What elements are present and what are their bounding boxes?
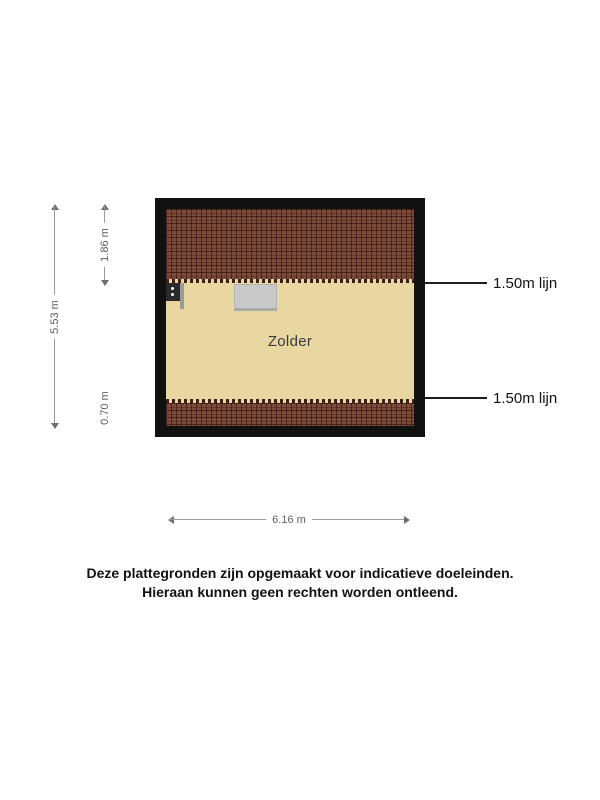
meter-dot-icon	[171, 287, 174, 290]
dimension-label-width: 6.16 m	[266, 514, 312, 526]
room-label: Zolder	[268, 333, 312, 350]
arrow-right-icon	[404, 516, 410, 524]
meter-dot-icon	[171, 293, 174, 296]
dimension-width: 6.16 m	[168, 514, 410, 526]
dimension-label-total-height: 5.53 m	[49, 295, 61, 339]
disclaimer-line-1: Deze plattegronden zijn opgemaakt voor i…	[0, 564, 600, 583]
disclaimer-text: Deze plattegronden zijn opgemaakt voor i…	[0, 564, 600, 602]
dimension-label-bottom-roof: 0.70 m	[99, 391, 111, 425]
arrow-left-icon	[168, 516, 174, 524]
arrow-up-icon	[51, 204, 59, 210]
meter-unit-icon	[166, 283, 185, 310]
arrow-down-icon	[51, 423, 59, 429]
dimension-total-height: 5.53 m	[49, 204, 61, 429]
roof-slope-bottom	[166, 403, 414, 426]
wall-strip	[180, 283, 184, 309]
meter-box-icon	[166, 283, 180, 301]
floorplan-page: Zolder 5.53 m 1.86 m 0.70 m	[0, 0, 600, 800]
arrow-up-icon	[101, 204, 109, 210]
callout-leader-line	[425, 282, 487, 284]
callout-label: 1.50m lijn	[493, 390, 557, 407]
roof-slope-top	[166, 209, 414, 279]
floorplan-attic: Zolder	[155, 198, 425, 437]
attic-floor-area: Zolder	[166, 283, 414, 399]
floorplan-interior: Zolder	[166, 209, 414, 426]
dimension-label-top-roof: 1.86 m	[99, 223, 111, 267]
disclaimer-line-2: Hieraan kunnen geen rechten worden ontle…	[0, 583, 600, 602]
callout-150m-line-bottom: 1.50m lijn	[425, 388, 557, 408]
dimension-top-roof: 1.86 m	[99, 204, 111, 286]
callout-150m-line-top: 1.50m lijn	[425, 273, 557, 293]
arrow-down-icon	[101, 280, 109, 286]
roof-window	[234, 284, 277, 311]
callout-label: 1.50m lijn	[493, 275, 557, 292]
callout-leader-line	[425, 397, 487, 399]
